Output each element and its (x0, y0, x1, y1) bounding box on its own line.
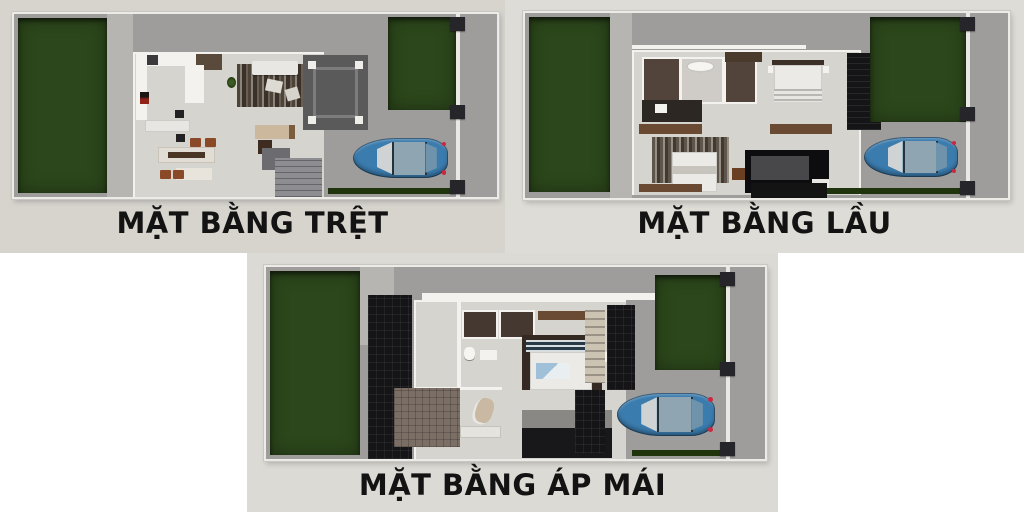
toilet (464, 347, 475, 360)
hedge (827, 188, 964, 194)
nightstand (823, 66, 828, 73)
fence-post (960, 181, 974, 195)
dining-chair (160, 170, 171, 179)
patio-frame (313, 67, 357, 118)
bar-stool (175, 110, 184, 118)
car-taillight (952, 169, 957, 174)
kitchen-side-counter (136, 54, 147, 120)
fence (966, 13, 970, 198)
fence-post (450, 105, 465, 119)
car-taillight (708, 427, 713, 432)
fence-post (960, 17, 974, 31)
roof-slope-right-upper (607, 305, 635, 390)
shelf (639, 124, 702, 134)
sofa (252, 61, 298, 75)
car-taillight (708, 397, 713, 402)
kitchen-island (185, 65, 204, 103)
car (353, 138, 448, 178)
bath-cabinet (480, 350, 497, 360)
roof-slope-brown (394, 388, 460, 447)
patio-pad (308, 116, 316, 124)
dining-chair (205, 138, 216, 147)
car (617, 393, 715, 436)
bench (460, 426, 501, 438)
roof-edge (632, 45, 806, 49)
bed-sheet (536, 363, 570, 378)
bed (774, 65, 822, 102)
patio-pad (355, 116, 363, 124)
desk (255, 125, 295, 139)
page: MẶT BẰNG TRỆT (0, 0, 1024, 512)
dining-chair (190, 138, 201, 147)
oven (140, 92, 149, 104)
bed-throw (672, 166, 717, 175)
car-roof (903, 141, 938, 174)
car-roof (392, 142, 427, 175)
fence-post (720, 442, 735, 456)
car-rear-window (936, 142, 947, 172)
closet (462, 310, 498, 339)
fence-post (720, 272, 735, 286)
dining-chair (173, 170, 184, 179)
fence-post (720, 362, 735, 376)
plant (227, 77, 236, 88)
attic-floor-plan (264, 265, 767, 461)
bed (530, 352, 592, 390)
laundry-unit (655, 104, 667, 113)
table-runner (168, 152, 204, 158)
fence-post (450, 17, 465, 31)
hedge (632, 450, 726, 456)
ground-floor-label: MẶT BẰNG TRỆT (0, 206, 505, 240)
shelf (639, 184, 702, 192)
right-lawn (655, 275, 726, 370)
closet-room (642, 57, 681, 104)
left-lawn (270, 271, 360, 455)
patio-deck (303, 55, 368, 130)
patio-pad (355, 61, 363, 69)
fence-post (450, 180, 465, 194)
hedge (328, 188, 456, 194)
dark-walk-strip (751, 183, 827, 198)
right-lawn (870, 17, 966, 122)
attic-floor-label: MẶT BẰNG ÁP MÁI (247, 468, 778, 502)
car-roof (657, 397, 693, 432)
void-inner (751, 156, 808, 180)
bar-counter (145, 120, 190, 132)
upper-floor-plan (523, 11, 1010, 200)
panel-attic-floor: MẶT BẰNG ÁP MÁI (247, 253, 778, 512)
car-taillight (442, 170, 447, 175)
side-table (732, 168, 745, 180)
panel-upper-floor: MẶT BẰNG LẦU (505, 0, 1024, 253)
fence-post (960, 107, 974, 121)
dining-table (158, 147, 215, 163)
car-rear-window (691, 399, 703, 431)
console-shelf (725, 52, 762, 62)
left-lawn (18, 18, 107, 193)
side-walkway (107, 14, 133, 197)
ground-floor-plan (12, 12, 499, 199)
wardrobe-shelf (770, 124, 832, 134)
panel-ground-floor: MẶT BẰNG TRỆT (0, 0, 505, 253)
car-rear-window (425, 143, 436, 173)
upper-floor-label: MẶT BẰNG LẦU (505, 206, 1024, 240)
roof-slope-right-lower (575, 390, 605, 453)
car-taillight (952, 141, 957, 146)
patio-pad (308, 61, 316, 69)
right-lawn (388, 17, 456, 110)
car (864, 137, 958, 177)
nightstand (768, 66, 773, 73)
interior-wall (457, 300, 461, 390)
ladder (585, 310, 605, 383)
stairs (275, 158, 322, 197)
bathtub (686, 60, 715, 73)
wardrobe-dark (642, 100, 702, 122)
bar-stool (176, 134, 185, 142)
closet-room (724, 57, 757, 104)
side-walkway (610, 13, 632, 198)
left-lawn (529, 17, 610, 192)
